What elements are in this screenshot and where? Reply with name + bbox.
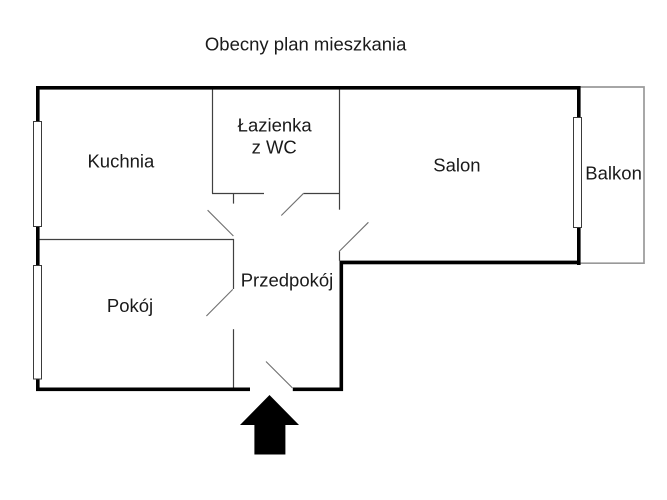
svg-text:Pokój: Pokój (107, 295, 153, 316)
svg-text:z WC: z WC (252, 137, 297, 158)
svg-text:Łazienka: Łazienka (238, 115, 313, 136)
svg-text:Obecny plan mieszkania: Obecny plan mieszkania (205, 33, 407, 54)
svg-text:Balkon: Balkon (585, 163, 642, 184)
svg-text:Kuchnia: Kuchnia (87, 151, 155, 172)
svg-text:Przedpokój: Przedpokój (241, 269, 334, 290)
svg-text:Salon: Salon (433, 155, 480, 176)
